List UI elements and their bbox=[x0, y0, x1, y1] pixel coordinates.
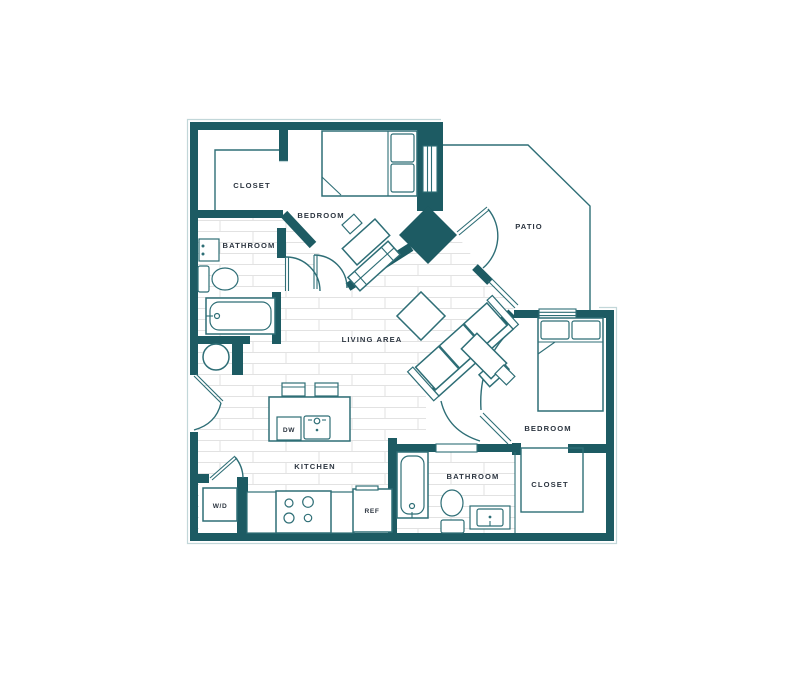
bed-icon bbox=[538, 318, 603, 411]
bathtub-icon bbox=[206, 298, 275, 334]
stove-icon bbox=[276, 491, 331, 533]
toilet-icon bbox=[198, 266, 238, 292]
toilet-icon bbox=[441, 490, 464, 533]
room-label-kitchen: KITCHEN bbox=[294, 462, 335, 471]
sink-icon bbox=[304, 416, 330, 439]
bedroom-top-window bbox=[423, 146, 437, 192]
bed-icon bbox=[322, 131, 417, 196]
floor-plan: CLOSET BEDROOM PATIO BATHROOM LIVING ARE… bbox=[0, 0, 796, 698]
appliance-label-dw: DW bbox=[283, 427, 295, 434]
room-label-bedroom-right: BEDROOM bbox=[524, 424, 571, 433]
room-label-bathroom-bottom: BATHROOM bbox=[447, 472, 500, 481]
room-label-patio: PATIO bbox=[515, 222, 543, 231]
room-label-closet-bottom: CLOSET bbox=[531, 480, 568, 489]
appliance-label-ref: REF bbox=[365, 508, 380, 515]
water-heater-icon bbox=[203, 344, 229, 370]
room-label-bathroom-left: BATHROOM bbox=[223, 241, 276, 250]
appliance-label-wd: W/D bbox=[213, 503, 228, 510]
room-label-living-area: LIVING AREA bbox=[342, 335, 403, 344]
sink-icon bbox=[199, 239, 219, 261]
room-label-bedroom-top: BEDROOM bbox=[297, 211, 344, 220]
bathtub-icon bbox=[397, 452, 428, 518]
vanity-sink-icon bbox=[470, 506, 510, 529]
floor-plan-canvas: CLOSET BEDROOM PATIO BATHROOM LIVING ARE… bbox=[0, 0, 796, 698]
counter-run bbox=[247, 491, 354, 533]
chair-icon bbox=[342, 214, 362, 234]
room-label-closet-top: CLOSET bbox=[233, 181, 270, 190]
